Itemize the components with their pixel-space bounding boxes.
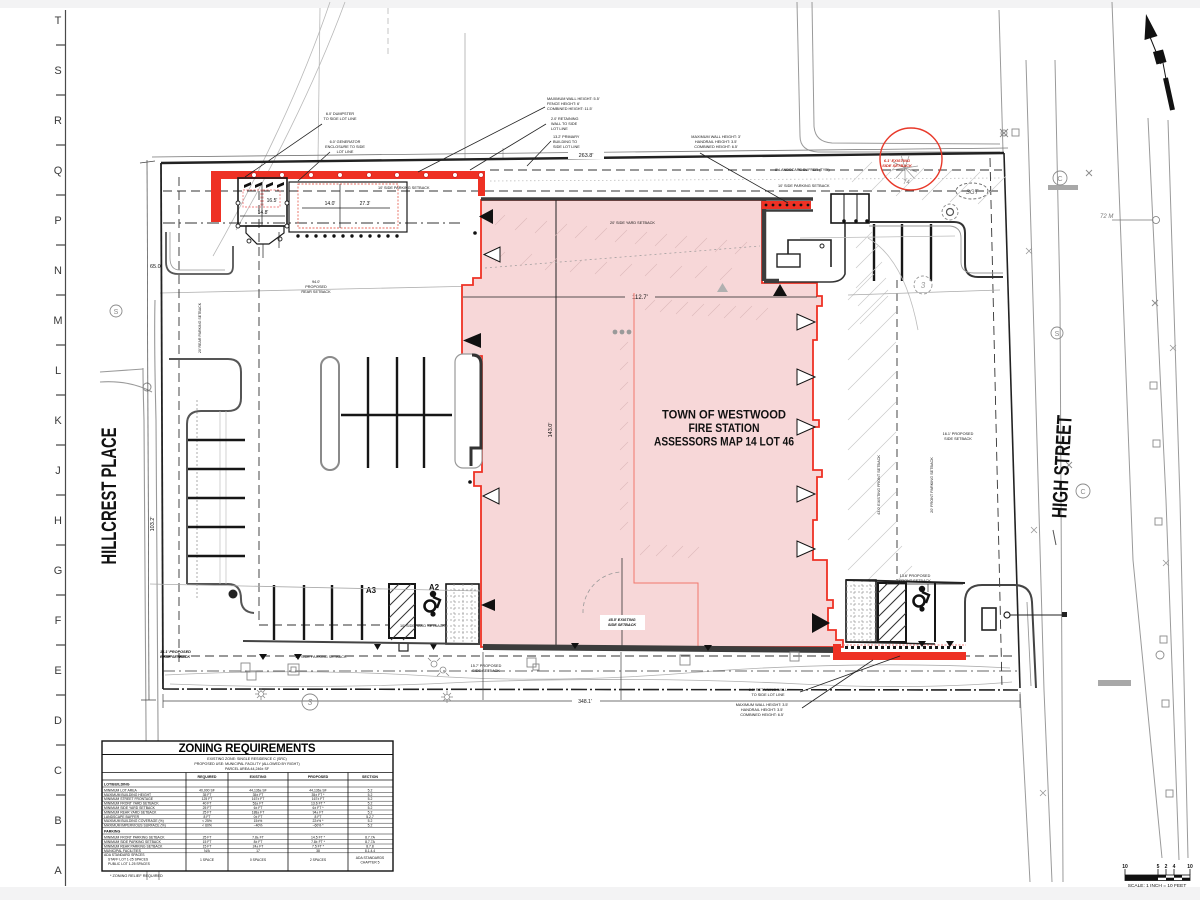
svg-text:MINIMUM SIDE PARKING SETBACK: MINIMUM SIDE PARKING SETBACK — [104, 840, 162, 844]
svg-text:~40%: ~40% — [254, 824, 263, 828]
svg-text:53± FT: 53± FT — [253, 802, 264, 806]
svg-text:SIDE SETBACK: SIDE SETBACK — [472, 669, 500, 673]
svg-text:5.2: 5.2 — [368, 824, 373, 828]
svg-text:7.5 FT *: 7.5 FT * — [312, 844, 325, 848]
svg-text:14.8': 14.8' — [258, 210, 269, 216]
svg-text:HANDRAIL HEIGHT: 3.5': HANDRAIL HEIGHT: 3.5' — [741, 708, 783, 712]
svg-text:15.1' PROPOSED: 15.1' PROPOSED — [160, 650, 191, 654]
svg-text:A3: A3 — [366, 586, 377, 595]
svg-text:< 25%: < 25% — [202, 819, 212, 823]
svg-text:4: 4 — [1173, 864, 1176, 870]
svg-text:FRONT SETBACK: FRONT SETBACK — [899, 579, 931, 583]
svg-text:Q: Q — [54, 165, 63, 177]
svg-text:8.1.4.4: 8.1.4.4 — [365, 849, 375, 853]
svg-text:FIRE STATION: FIRE STATION — [689, 421, 760, 435]
svg-text:25 FT: 25 FT — [203, 806, 212, 810]
svg-text:~60% *: ~60% * — [312, 824, 324, 828]
svg-text:MINIMUM STREET FRONTAGE: MINIMUM STREET FRONTAGE — [104, 797, 154, 801]
svg-text:N/A: N/A — [204, 849, 210, 853]
svg-text:15.7' PROPOSED: 15.7' PROPOSED — [471, 664, 502, 668]
svg-text:8.7.7A: 8.7.7A — [365, 836, 376, 840]
svg-text:8.7.8: 8.7.8 — [366, 844, 374, 848]
svg-text:ADA STANDARD SPACES: ADA STANDARD SPACES — [104, 853, 145, 857]
svg-text:MAXIMUM WALL HEIGHT: 5.5': MAXIMUM WALL HEIGHT: 5.5' — [547, 97, 600, 101]
svg-text:S: S — [1055, 331, 1060, 338]
svg-text:E: E — [54, 665, 61, 677]
svg-text:MINIMUM REAR YARD SETBACK: MINIMUM REAR YARD SETBACK — [104, 810, 157, 814]
svg-text:COMBINED HEIGHT: 11.5': COMBINED HEIGHT: 11.5' — [547, 107, 593, 111]
svg-text:14.5 FT *: 14.5 FT * — [311, 836, 326, 840]
svg-text:6.0' DUMPSTER: 6.0' DUMPSTER — [326, 112, 355, 116]
svg-text:REAR SETBACK: REAR SETBACK — [160, 655, 190, 659]
svg-text:PROPOSED USE: MUNICIPAL FACILI: PROPOSED USE: MUNICIPAL FACILITY (ALLOWE… — [194, 762, 299, 766]
svg-text:STAFF LOT 1-25 SPACES: STAFF LOT 1-25 SPACES — [108, 858, 149, 862]
svg-text:N: N — [54, 265, 62, 277]
svg-text:MAXIMUM WALL HEIGHT: 3': MAXIMUM WALL HEIGHT: 3' — [691, 135, 741, 139]
svg-text:H: H — [54, 515, 62, 527]
svg-text:35 FT: 35 FT — [203, 793, 212, 797]
svg-text:MAXIMUM WALL HEIGHT: 3.5': MAXIMUM WALL HEIGHT: 3.5' — [736, 703, 789, 707]
svg-text:1 SPACE: 1 SPACE — [200, 858, 215, 862]
svg-text:65.0': 65.0' — [150, 264, 162, 270]
svg-text:L: L — [55, 365, 61, 377]
svg-text:143.0': 143.0' — [548, 423, 554, 438]
svg-text:LOT/BUILDING: LOT/BUILDING — [104, 783, 130, 787]
svg-text:BUILDING TO: BUILDING TO — [553, 140, 577, 144]
svg-text:HANDRAIL HEIGHT: 3.5': HANDRAIL HEIGHT: 3.5' — [695, 140, 737, 144]
svg-text:3: 3 — [921, 281, 926, 290]
svg-text:8± FT: 8± FT — [254, 840, 263, 844]
svg-text:A2: A2 — [429, 583, 440, 592]
svg-text:SIDE SETBACK: SIDE SETBACK — [944, 437, 972, 441]
svg-text:25 FT: 25 FT — [203, 836, 212, 840]
svg-text:SECTION: SECTION — [362, 775, 378, 779]
svg-text:ENCLOSURE TO SIDE: ENCLOSURE TO SIDE — [325, 145, 365, 149]
svg-text:C: C — [54, 765, 62, 777]
svg-text:8.7.7A: 8.7.7A — [365, 840, 376, 844]
svg-text:6± FT *: 6± FT * — [312, 806, 324, 810]
svg-text:8.0' RETAINING WALL: 8.0' RETAINING WALL — [749, 688, 788, 692]
svg-text:3: 3 — [308, 698, 313, 707]
svg-text:C: C — [1080, 489, 1085, 496]
svg-text:MAXIMUM BUILDING COVERAGE (%): MAXIMUM BUILDING COVERAGE (%) — [104, 819, 164, 823]
svg-text:5.2: 5.2 — [368, 797, 373, 801]
svg-text:348.1': 348.1' — [578, 699, 592, 705]
svg-text:SIDE SETBACK: SIDE SETBACK — [882, 163, 913, 168]
svg-text:167± FT: 167± FT — [312, 797, 325, 801]
svg-text:35± FT *: 35± FT * — [312, 793, 326, 797]
svg-text:WALL TO SIDE: WALL TO SIDE — [551, 122, 578, 126]
svg-text:10' SIDE PARKING SETBACK: 10' SIDE PARKING SETBACK — [378, 186, 430, 190]
svg-text:94.0': 94.0' — [312, 280, 320, 284]
svg-text:35± FT: 35± FT — [253, 793, 264, 797]
svg-text:P: P — [54, 215, 61, 227]
svg-text:< 60%: < 60% — [202, 824, 212, 828]
svg-text:8' LANDSCAPE BUFFER (TYP.): 8' LANDSCAPE BUFFER (TYP.) — [775, 168, 830, 172]
svg-text:74: 74 — [903, 180, 910, 186]
svg-text:10: 10 — [1122, 864, 1128, 870]
svg-text:CHAPTER 5: CHAPTER 5 — [360, 860, 379, 864]
svg-text:K: K — [54, 415, 62, 427]
svg-text:44,136± SF: 44,136± SF — [309, 788, 327, 792]
svg-text:263.8': 263.8' — [579, 153, 594, 159]
svg-text:HILLCREST PLACE: HILLCREST PLACE — [98, 428, 121, 565]
svg-text:PUBLIC LOT 1-25 SPACES: PUBLIC LOT 1-25 SPACES — [108, 862, 151, 866]
svg-text:20' REAR PARKING SETBACK: 20' REAR PARKING SETBACK — [198, 302, 202, 353]
svg-text:188± FT: 188± FT — [252, 810, 265, 814]
svg-text:0± FT: 0± FT — [254, 815, 263, 819]
svg-text:125 FT: 125 FT — [202, 797, 213, 801]
svg-text:25 FT: 25 FT — [203, 810, 212, 814]
svg-text:27.3': 27.3' — [360, 201, 371, 207]
svg-text:20' FRONT PARKING SETBACK: 20' FRONT PARKING SETBACK — [930, 457, 934, 513]
svg-text:D: D — [54, 715, 62, 727]
svg-text:17: 17 — [256, 849, 260, 853]
svg-text:0 SPACES: 0 SPACES — [250, 858, 267, 862]
svg-text:ZONING REQUIREMENTS: ZONING REQUIREMENTS — [179, 743, 316, 755]
svg-text:10' SIDE PARKING SETBACK: 10' SIDE PARKING SETBACK — [778, 184, 830, 188]
svg-text:10' SIDE PARKING SETBACK: 10' SIDE PARKING SETBACK — [295, 655, 347, 659]
svg-text:13.2' PRIMARY: 13.2' PRIMARY — [553, 135, 580, 139]
svg-text:PARKING: PARKING — [104, 829, 121, 833]
svg-text:* ZONING RELIEF REQUIRED: * ZONING RELIEF REQUIRED — [110, 874, 163, 878]
svg-text:40,000 SF: 40,000 SF — [199, 788, 215, 792]
svg-text:J: J — [55, 465, 61, 477]
svg-text:PROPOSED: PROPOSED — [308, 775, 329, 779]
svg-text:6.0' GENERATOR: 6.0' GENERATOR — [330, 140, 361, 144]
svg-text:5.2: 5.2 — [368, 806, 373, 810]
svg-text:LOT LINE: LOT LINE — [551, 127, 568, 131]
svg-text:COMBINED HEIGHT: 6.5': COMBINED HEIGHT: 6.5' — [694, 145, 738, 149]
svg-text:MINIMUM LOT AREA: MINIMUM LOT AREA — [104, 788, 137, 792]
svg-text:B: B — [54, 815, 61, 827]
svg-text:MINIMUM FRONT PARKING SETBACK: MINIMUM FRONT PARKING SETBACK — [104, 836, 165, 840]
svg-text:44,136± SF: 44,136± SF — [249, 788, 267, 792]
svg-text:MINIMUM SIDE YARD SETBACK: MINIMUM SIDE YARD SETBACK — [104, 806, 156, 810]
svg-text:S: S — [114, 309, 119, 316]
svg-text:C: C — [1057, 176, 1062, 183]
svg-text:103.2': 103.2' — [150, 517, 156, 532]
svg-text:LANDSCAPE BUFFER: LANDSCAPE BUFFER — [104, 815, 140, 819]
svg-text:8 FT: 8 FT — [315, 815, 322, 819]
svg-text:7.8± FT: 7.8± FT — [252, 836, 264, 840]
svg-text:5.2: 5.2 — [368, 788, 373, 792]
svg-text:6± FT: 6± FT — [254, 806, 263, 810]
svg-text:2: 2 — [1165, 864, 1168, 870]
svg-text:16.5': 16.5' — [267, 198, 278, 204]
svg-text:94± FT: 94± FT — [313, 810, 324, 814]
svg-text:167± FT: 167± FT — [252, 797, 265, 801]
svg-text:PROPOSED: PROPOSED — [305, 285, 327, 289]
svg-text:7.8± FT *: 7.8± FT * — [311, 840, 326, 844]
svg-text:R: R — [54, 115, 62, 127]
svg-text:38: 38 — [316, 849, 320, 853]
svg-text:T: T — [55, 15, 62, 27]
svg-text:MUNICIPAL FACILITIES: MUNICIPAL FACILITIES — [104, 849, 142, 853]
svg-text:20' SIDE YARD SETBACK: 20' SIDE YARD SETBACK — [610, 221, 655, 225]
svg-text:FENCE HEIGHT: 6': FENCE HEIGHT: 6' — [547, 102, 580, 106]
svg-text:15±%: 15±% — [254, 819, 263, 823]
svg-text:SIDE SETBACK: SIDE SETBACK — [608, 623, 637, 627]
svg-text:A: A — [54, 865, 62, 877]
svg-text:ASSESSORS MAP 14 LOT 46: ASSESSORS MAP 14 LOT 46 — [654, 435, 794, 449]
svg-text:TO SIDE LOT LINE: TO SIDE LOT LINE — [752, 693, 785, 697]
svg-text:15 FT: 15 FT — [203, 844, 212, 848]
svg-text:MAXIMUM IMPERVIOUS SURFACE (%): MAXIMUM IMPERVIOUS SURFACE (%) — [104, 824, 166, 828]
svg-text:SCALE: 1 INCH = 10 FEET: SCALE: 1 INCH = 10 FEET — [1128, 883, 1187, 889]
svg-text:REAR SETBACK: REAR SETBACK — [301, 290, 331, 294]
svg-text:EXISTING ZONE: SINGLE RESIDENC: EXISTING ZONE: SINGLE RESIDENCE C (SRC) — [207, 757, 286, 761]
svg-text:REQUIRED: REQUIRED — [198, 775, 217, 779]
svg-text:10' SIDE YARD SETBACK: 10' SIDE YARD SETBACK — [400, 624, 445, 628]
svg-text:PARCEL AREA:44,246± SF: PARCEL AREA:44,246± SF — [225, 767, 270, 771]
svg-text:8 FT: 8 FT — [204, 815, 211, 819]
svg-text:45.5' EXISTING: 45.5' EXISTING — [607, 618, 635, 622]
svg-text:43.0' EXISTING FRONT SETBACK: 43.0' EXISTING FRONT SETBACK — [877, 455, 881, 515]
svg-text:LOT LINE: LOT LINE — [337, 150, 354, 154]
svg-text:2.0' RETAINING: 2.0' RETAINING — [551, 117, 578, 121]
svg-text:F: F — [55, 615, 62, 627]
svg-text:10: 10 — [1187, 864, 1193, 870]
svg-text:EXISTING: EXISTING — [250, 775, 267, 779]
svg-text:ADA STANDARDS: ADA STANDARDS — [356, 856, 385, 860]
svg-text:2 SPACES: 2 SPACES — [310, 858, 327, 862]
svg-text:MINIMUM REAR PARKING SETBACK: MINIMUM REAR PARKING SETBACK — [104, 844, 163, 848]
svg-text:5.2.7: 5.2.7 — [366, 815, 374, 819]
svg-text:15 FT: 15 FT — [203, 840, 212, 844]
svg-text:13.6 FT *: 13.6 FT * — [311, 802, 326, 806]
svg-text:TOWN OF WESTWOOD: TOWN OF WESTWOOD — [662, 408, 786, 422]
svg-text:13.6' PROPOSED: 13.6' PROPOSED — [900, 574, 931, 578]
svg-text:COMBINED HEIGHT: 6.5': COMBINED HEIGHT: 6.5' — [740, 713, 784, 717]
svg-text:M: M — [53, 315, 62, 327]
svg-text:14.0': 14.0' — [325, 201, 336, 207]
svg-text:TO SIDE LOT LINE: TO SIDE LOT LINE — [324, 117, 357, 121]
svg-text:16.1' PROPOSED: 16.1' PROPOSED — [943, 432, 974, 436]
svg-text:24± FT: 24± FT — [253, 844, 264, 848]
svg-text:MAXIMUM BUILDING HEIGHT: MAXIMUM BUILDING HEIGHT — [104, 793, 151, 797]
svg-text:S: S — [54, 65, 61, 77]
svg-text:G: G — [54, 565, 63, 577]
svg-text:5: 5 — [1157, 864, 1160, 870]
svg-text:5.2: 5.2 — [368, 802, 373, 806]
svg-text:40 FT: 40 FT — [203, 802, 212, 806]
svg-text:SGT: SGT — [966, 190, 980, 196]
svg-text:5.2: 5.2 — [368, 810, 373, 814]
svg-text:5.2: 5.2 — [368, 793, 373, 797]
svg-text:5.2: 5.2 — [368, 819, 373, 823]
svg-text:22±% *: 22±% * — [313, 819, 325, 823]
svg-text:MINIMUM FRONT YARD SETBACK: MINIMUM FRONT YARD SETBACK — [104, 802, 159, 806]
svg-text:SIDE LOT LINE: SIDE LOT LINE — [553, 145, 580, 149]
svg-text:72 M: 72 M — [1100, 214, 1113, 220]
